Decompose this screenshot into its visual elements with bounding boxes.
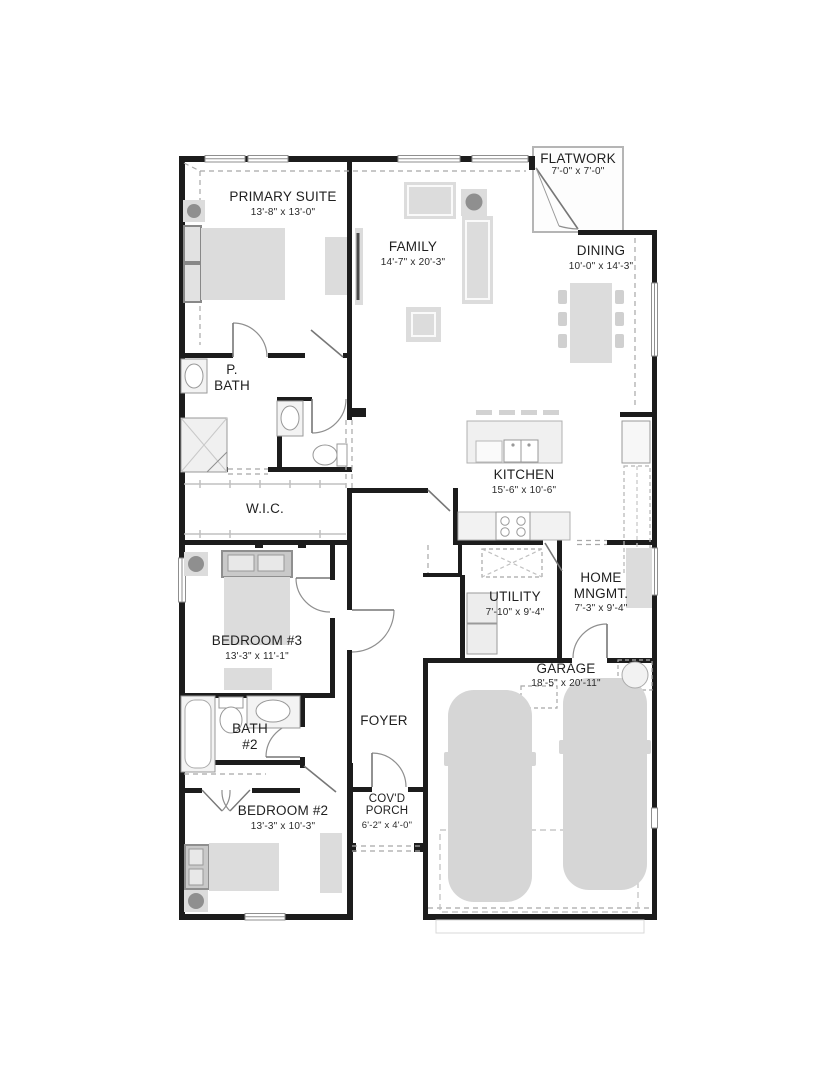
room-label-bedroom3: BEDROOM #3 xyxy=(212,633,303,649)
room-dims-bedroom2: 13'-3" x 10'-3" xyxy=(251,821,316,833)
water-heater xyxy=(622,662,648,688)
refrigerator xyxy=(622,421,650,463)
bedroom2-dresser xyxy=(320,833,342,893)
bedroom2-furniture xyxy=(184,833,342,912)
room-label-bedroom2: BEDROOM #2 xyxy=(238,803,329,819)
room-label-primary-bath: P. BATH xyxy=(214,362,250,393)
dining-table xyxy=(570,283,612,363)
room-label-covd-porch: COV'D PORCH xyxy=(366,793,409,817)
room-label-primary-suite: PRIMARY SUITE xyxy=(229,189,336,205)
room-dims-kitchen: 15'-6" x 10'-6" xyxy=(492,485,557,497)
home-mngmt-desk xyxy=(626,548,652,608)
tv-screen xyxy=(357,233,360,300)
car-right xyxy=(563,678,647,890)
room-label-dining: DINING xyxy=(577,243,625,259)
bedroom3-furniture xyxy=(184,551,292,690)
room-dims-utility: 7'-10" x 9'-4" xyxy=(486,607,545,619)
room-label-kitchen: KITCHEN xyxy=(494,467,555,483)
room-dims-dining: 10'-0" x 14'-3" xyxy=(569,261,634,273)
room-dims-garage: 18'-5" x 20'-11" xyxy=(531,678,601,690)
room-label-bath2: BATH #2 xyxy=(232,721,268,752)
family-plant xyxy=(466,194,483,211)
bar-stools xyxy=(476,410,559,415)
bath2-toilet-tank xyxy=(219,697,243,708)
toilet-tank xyxy=(337,444,347,466)
dining-furniture xyxy=(558,283,624,363)
primary-plant xyxy=(187,204,201,218)
garage-contents xyxy=(436,662,651,933)
room-label-utility: UTILITY xyxy=(489,589,541,605)
room-dims-primary-suite: 13'-8" x 13'-0" xyxy=(251,207,316,219)
room-label-family: FAMILY xyxy=(389,239,437,255)
room-dims-bedroom3: 13'-3" x 11'-1" xyxy=(225,651,289,663)
room-label-wic: W.I.C. xyxy=(246,501,284,517)
range xyxy=(496,512,530,540)
dryer xyxy=(467,624,497,654)
dishwasher xyxy=(476,441,502,462)
room-label-foyer: FOYER xyxy=(360,713,408,729)
floor-plan-drawing xyxy=(0,0,835,1080)
bedroom2-bed xyxy=(209,843,279,891)
primary-dresser xyxy=(325,237,347,295)
bedroom3-dresser xyxy=(224,668,272,690)
primary-headboard-2 xyxy=(184,264,201,302)
bedroom3-plant xyxy=(188,556,204,572)
primary-bath-fixtures xyxy=(181,359,347,472)
loveseat xyxy=(404,182,456,219)
primary-headboard-1 xyxy=(184,226,201,262)
room-label-flatwork: FLATWORK xyxy=(540,151,616,167)
bedroom2-plant xyxy=(188,893,204,909)
floor-plan-page: FLATWORK 7'-0" x 7'-0" PRIMARY SUITE 13'… xyxy=(0,0,835,1080)
room-label-garage: GARAGE xyxy=(537,661,596,677)
primary-bed xyxy=(201,228,285,300)
car-left xyxy=(448,690,532,902)
driveway-apron xyxy=(436,920,644,933)
room-dims-flatwork: 7'-0" x 7'-0" xyxy=(552,166,605,178)
room-dims-family: 14'-7" x 20'-3" xyxy=(381,257,446,269)
room-dims-covd-porch: 6'-2" x 4'-0" xyxy=(362,821,412,832)
room-dims-home-mngmt: 7'-3" x 9'-4" xyxy=(575,603,628,615)
room-label-home-mngmt: HOME MNGMT. xyxy=(574,570,628,601)
toilet-bowl xyxy=(313,445,337,465)
